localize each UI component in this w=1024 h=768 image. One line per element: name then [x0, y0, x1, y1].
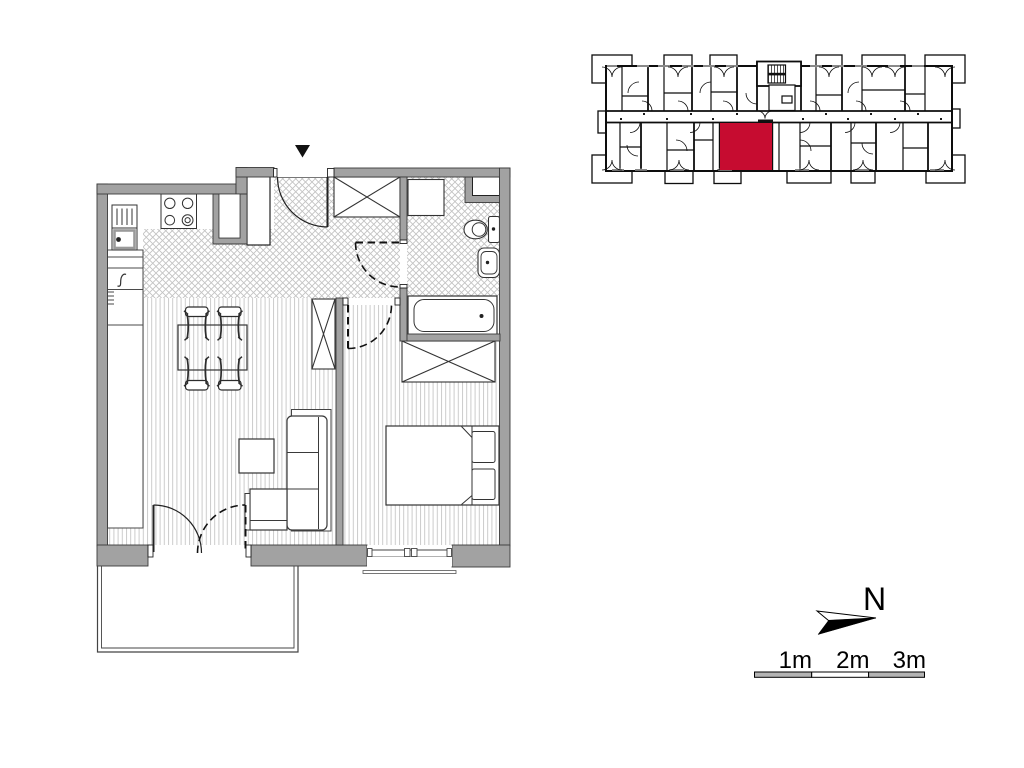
svg-text:2m: 2m: [836, 647, 869, 674]
svg-text:3m: 3m: [893, 647, 926, 674]
svg-text:1m: 1m: [779, 647, 812, 674]
svg-text:N: N: [863, 581, 886, 617]
